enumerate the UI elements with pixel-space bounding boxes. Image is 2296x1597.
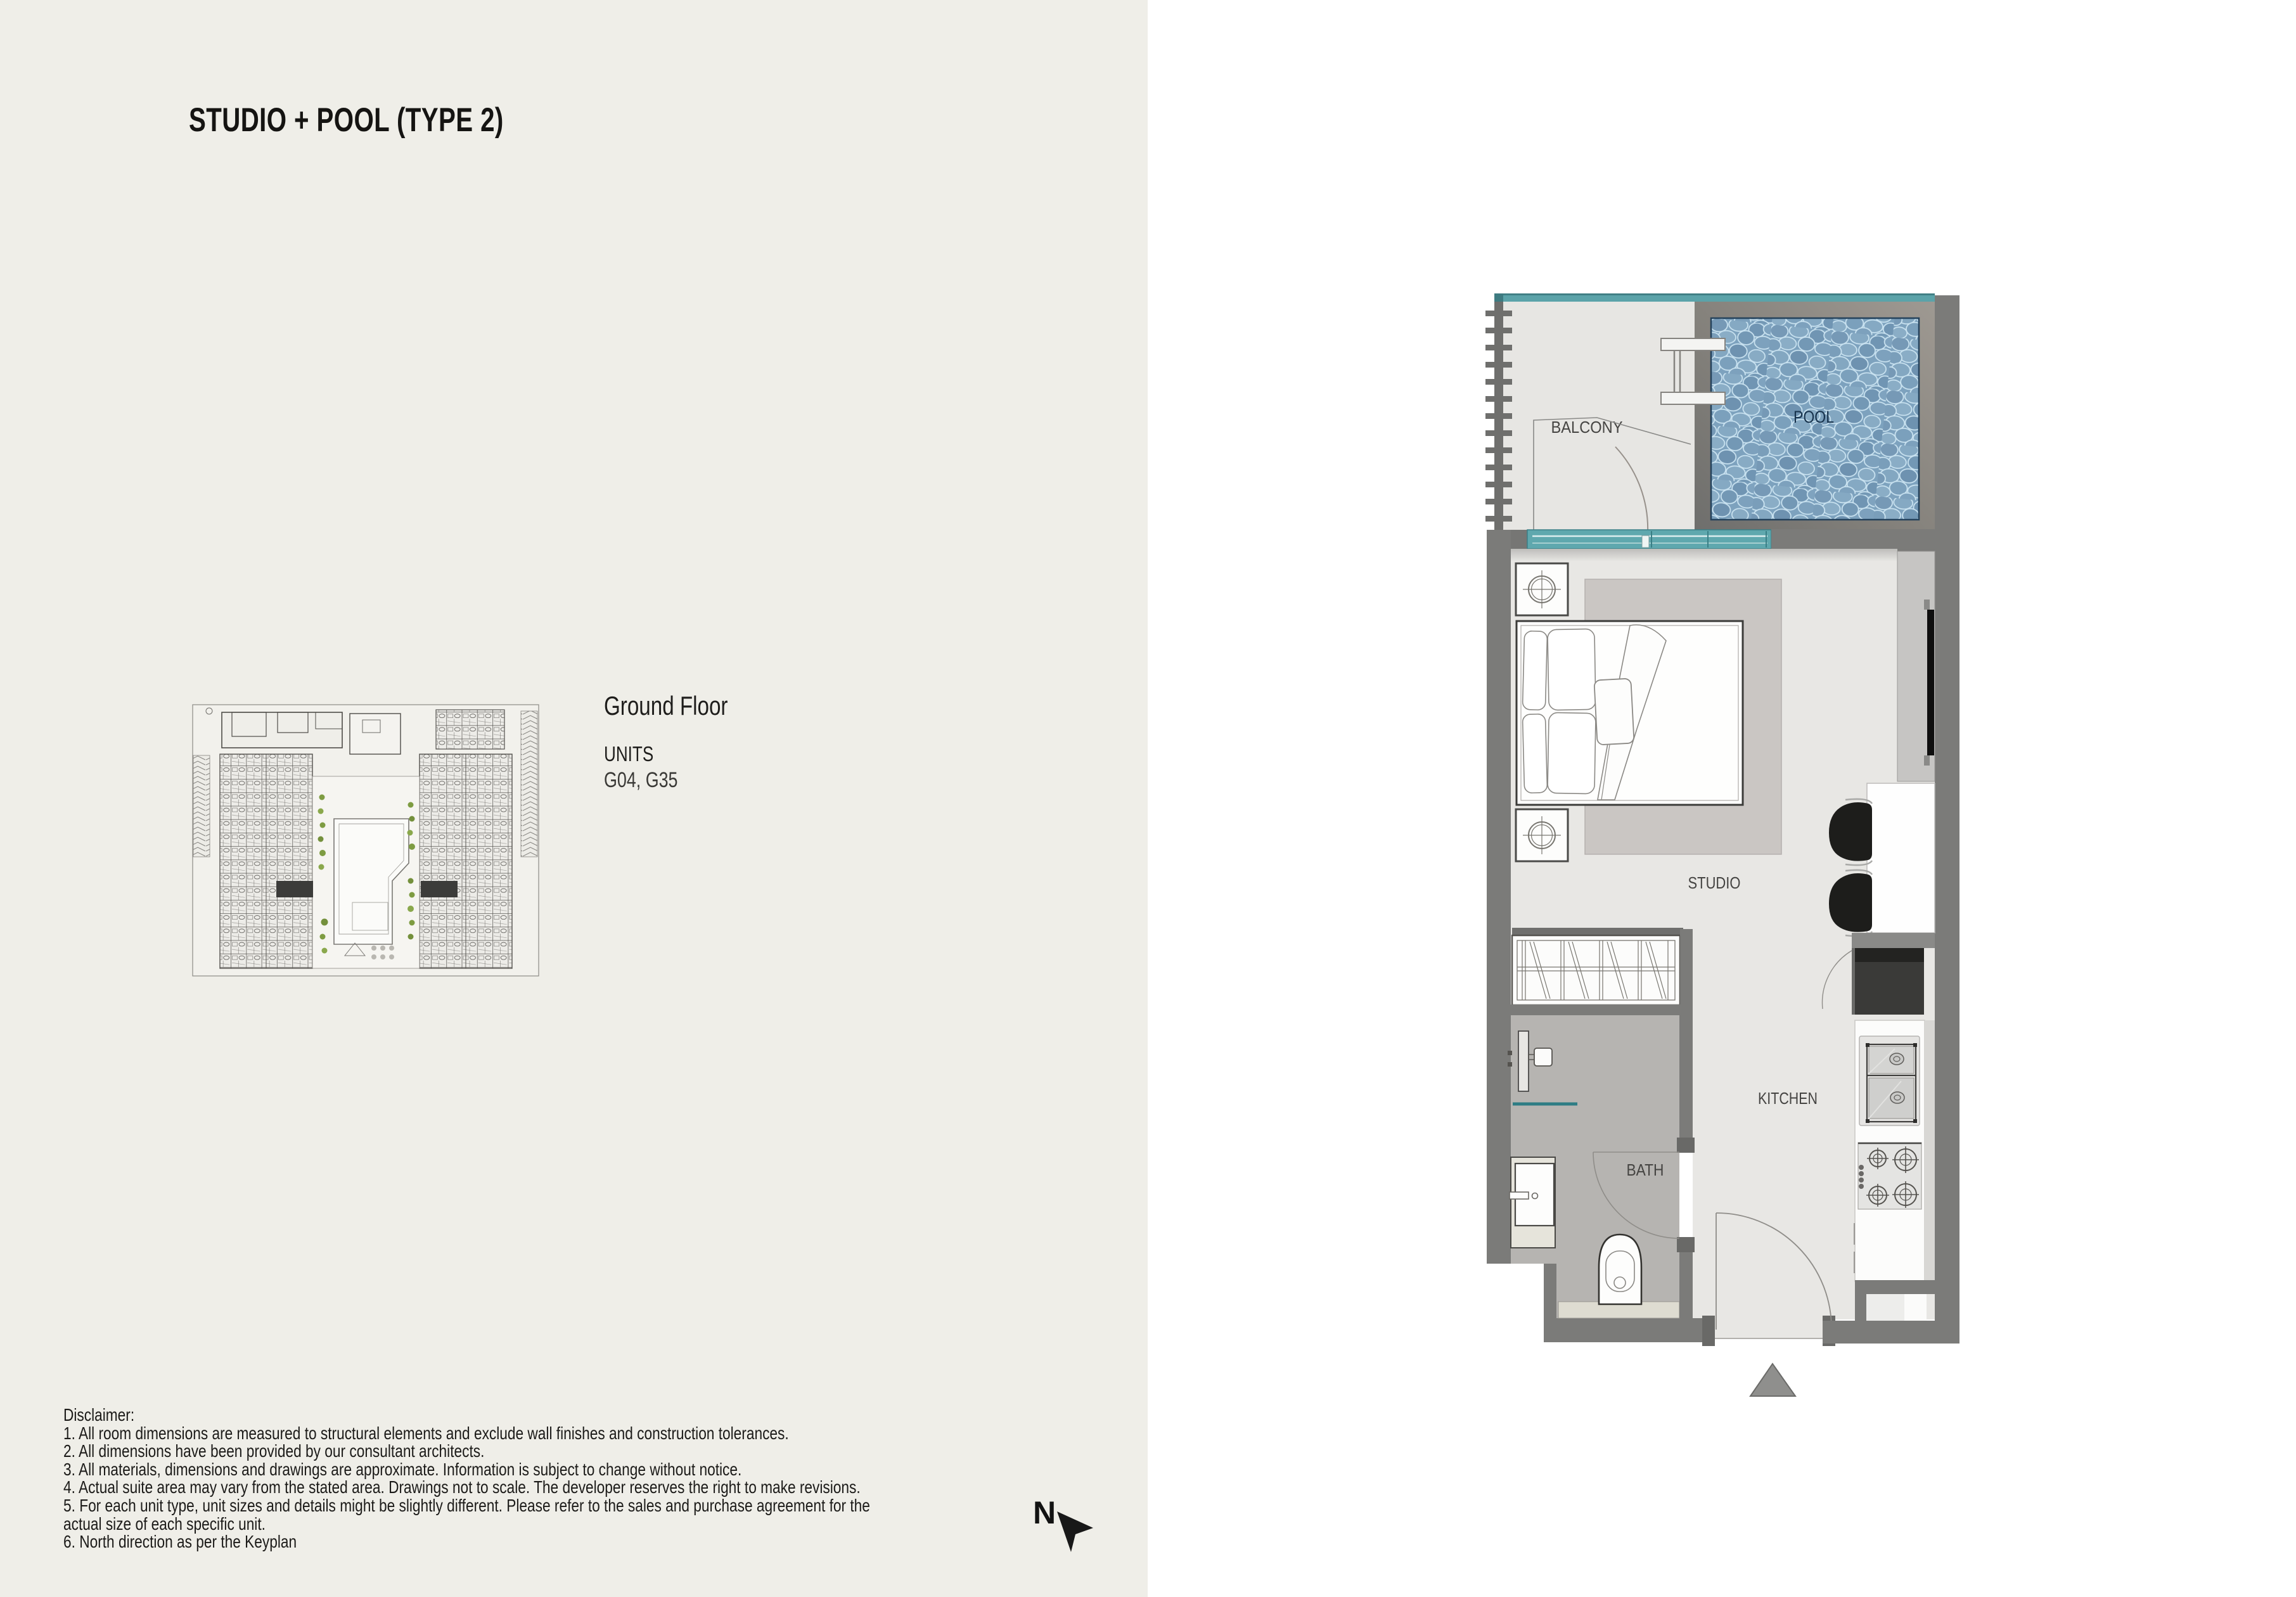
svg-text:KITCHEN: KITCHEN [1758, 1089, 1818, 1108]
svg-text:BALCONY: BALCONY [1551, 418, 1623, 437]
svg-text:POOL: POOL [1793, 407, 1834, 427]
svg-text:STUDIO: STUDIO [1688, 873, 1741, 892]
svg-text:BATH: BATH [1627, 1160, 1664, 1179]
